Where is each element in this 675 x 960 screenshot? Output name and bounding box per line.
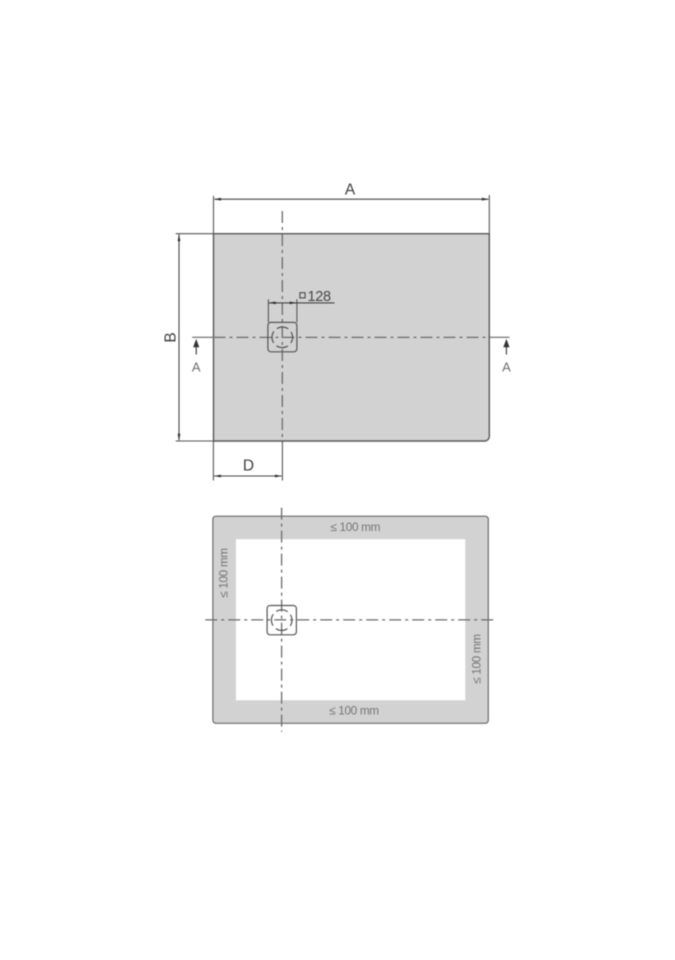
svg-text:≤ 100 mm: ≤ 100 mm [331, 520, 381, 534]
svg-text:≤ 100 mm: ≤ 100 mm [217, 548, 231, 598]
svg-text:≤ 100 mm: ≤ 100 mm [329, 703, 379, 717]
svg-text:D: D [243, 458, 254, 475]
svg-text:≤ 100 mm: ≤ 100 mm [470, 634, 484, 684]
svg-text:B: B [163, 332, 180, 342]
svg-text:A: A [192, 360, 201, 375]
svg-text:128: 128 [308, 289, 332, 305]
svg-text:A: A [345, 182, 356, 199]
svg-text:A: A [502, 360, 511, 375]
